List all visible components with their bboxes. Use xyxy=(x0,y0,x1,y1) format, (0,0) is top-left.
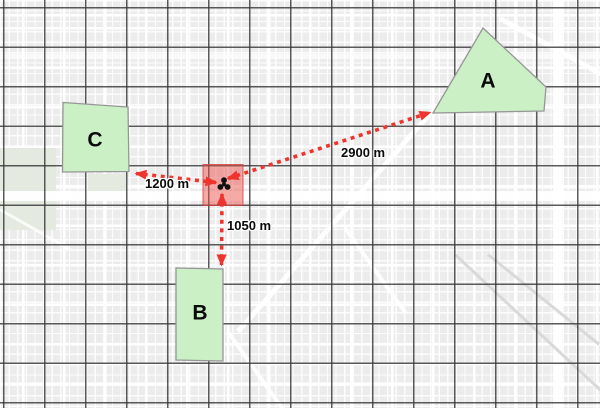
distance-label-c: 1200 m xyxy=(145,177,189,190)
distance-label-b: 1050 m xyxy=(227,219,271,232)
distance-label-a: 2900 m xyxy=(341,146,385,159)
map-canvas[interactable]: A B C 2900 m 1050 m 1200 m xyxy=(0,0,600,408)
zone-b-label: B xyxy=(192,303,207,324)
distance-arrow-b xyxy=(222,194,223,265)
distance-arrow-a xyxy=(228,113,430,179)
annotation-layer xyxy=(0,0,600,408)
zone-c-label: C xyxy=(87,130,102,151)
radiation-icon xyxy=(216,176,232,192)
zone-a-label: A xyxy=(480,71,495,92)
